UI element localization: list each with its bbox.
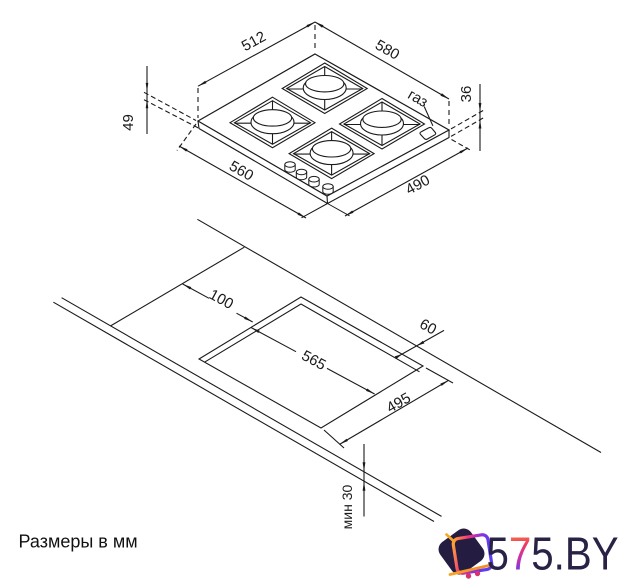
svg-text:49: 49 <box>120 114 137 131</box>
svg-text:575.BY: 575.BY <box>487 529 619 580</box>
svg-text:мин 30: мин 30 <box>339 484 355 529</box>
svg-text:36: 36 <box>458 86 475 103</box>
svg-text:Размеры в мм: Размеры в мм <box>19 532 138 552</box>
